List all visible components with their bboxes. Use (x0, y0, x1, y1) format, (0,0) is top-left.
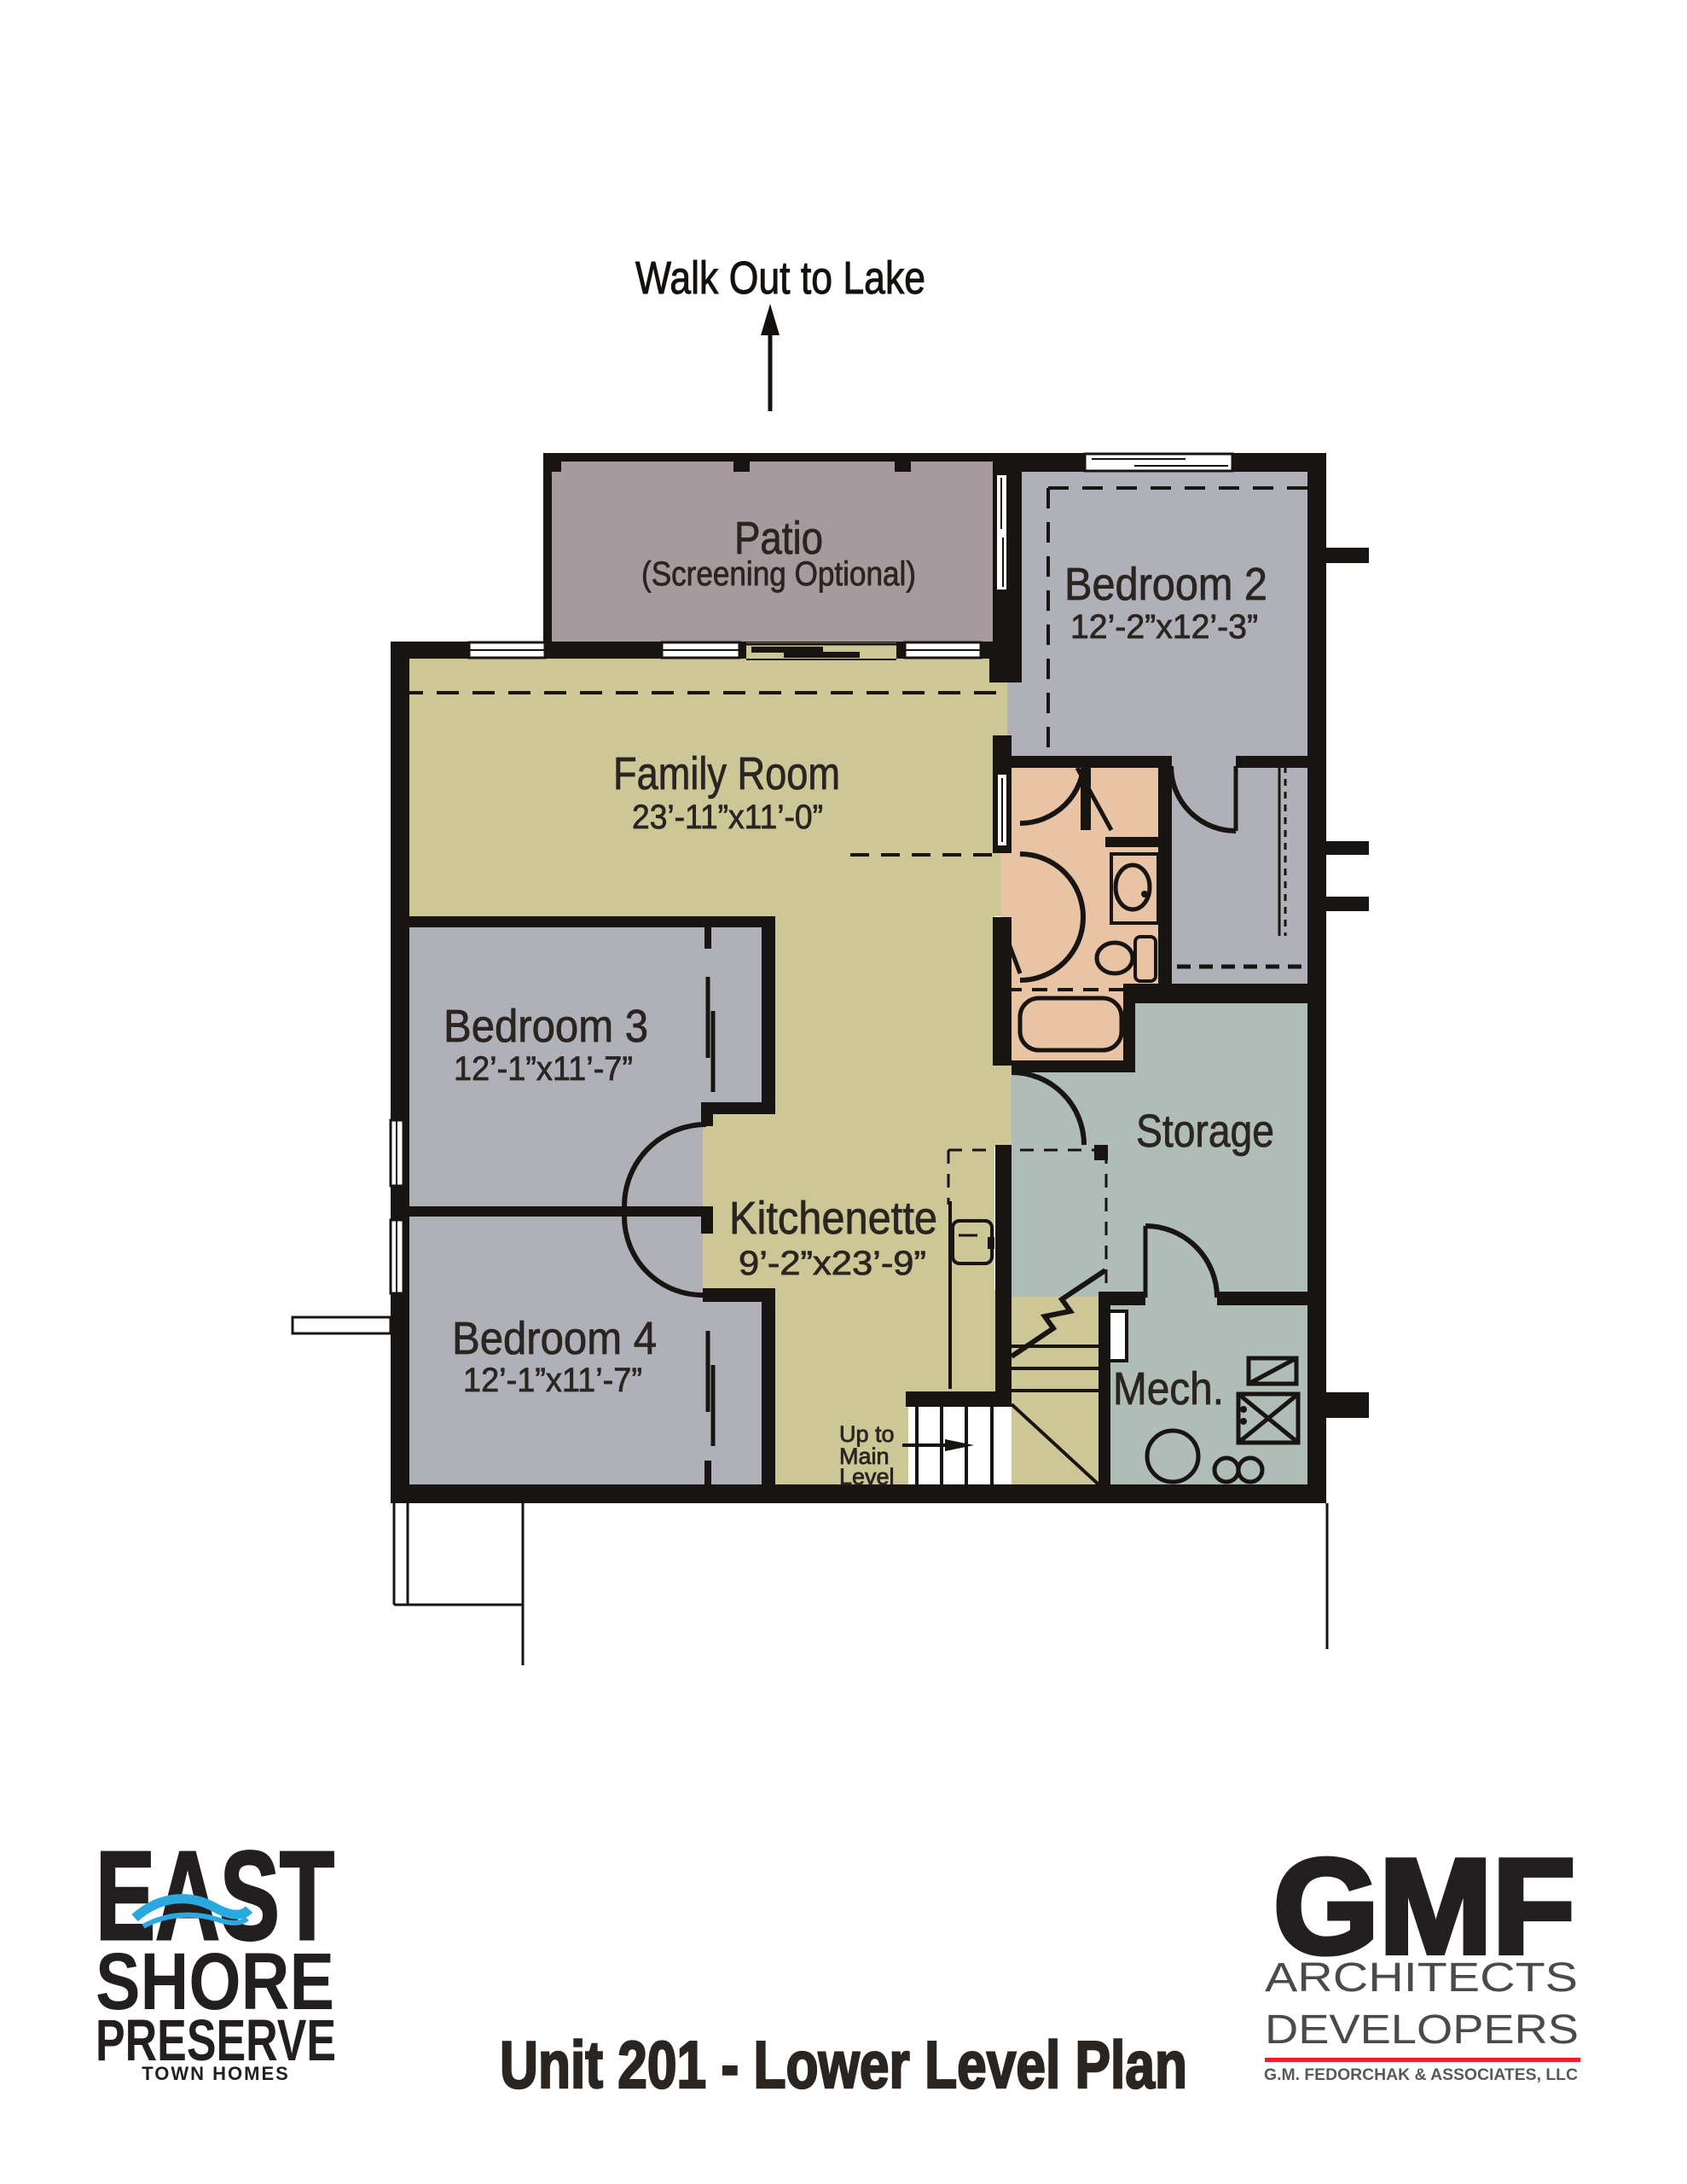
svg-text:9’-2”x23’-9”: 9’-2”x23’-9” (739, 1245, 926, 1282)
svg-text:G.M. FEDORCHAK & ASSOCIATES, L: G.M. FEDORCHAK & ASSOCIATES, LLC (1264, 2066, 1578, 2084)
svg-text:23’-11”x11’-0”: 23’-11”x11’-0” (632, 799, 823, 836)
svg-text:12’-1”x11’-7”: 12’-1”x11’-7” (454, 1050, 633, 1088)
svg-text:12’-1”x11’-7”: 12’-1”x11’-7” (463, 1362, 642, 1399)
svg-text:Level: Level (839, 1464, 895, 1490)
svg-text:TOWN HOMES: TOWN HOMES (142, 2063, 290, 2084)
svg-text:Storage: Storage (1136, 1106, 1274, 1157)
svg-text:Kitchenette: Kitchenette (729, 1193, 937, 1244)
svg-text:(Screening Optional): (Screening Optional) (641, 555, 916, 593)
svg-text:Walk Out to Lake: Walk Out to Lake (635, 253, 925, 304)
svg-text:Family Room: Family Room (613, 748, 840, 799)
svg-text:Unit 201 - Lower Level Plan: Unit 201 - Lower Level Plan (500, 2027, 1187, 2102)
svg-text:ARCHITECTS: ARCHITECTS (1265, 1955, 1578, 2001)
svg-text:12’-2”x12’-3”: 12’-2”x12’-3” (1070, 608, 1258, 646)
svg-text:DEVELOPERS: DEVELOPERS (1265, 2007, 1579, 2053)
svg-text:Bedroom 2: Bedroom 2 (1064, 559, 1267, 610)
svg-text:Bedroom 3: Bedroom 3 (443, 1001, 648, 1052)
svg-text:Bedroom 4: Bedroom 4 (452, 1313, 657, 1364)
svg-text:Mech.: Mech. (1113, 1363, 1224, 1414)
